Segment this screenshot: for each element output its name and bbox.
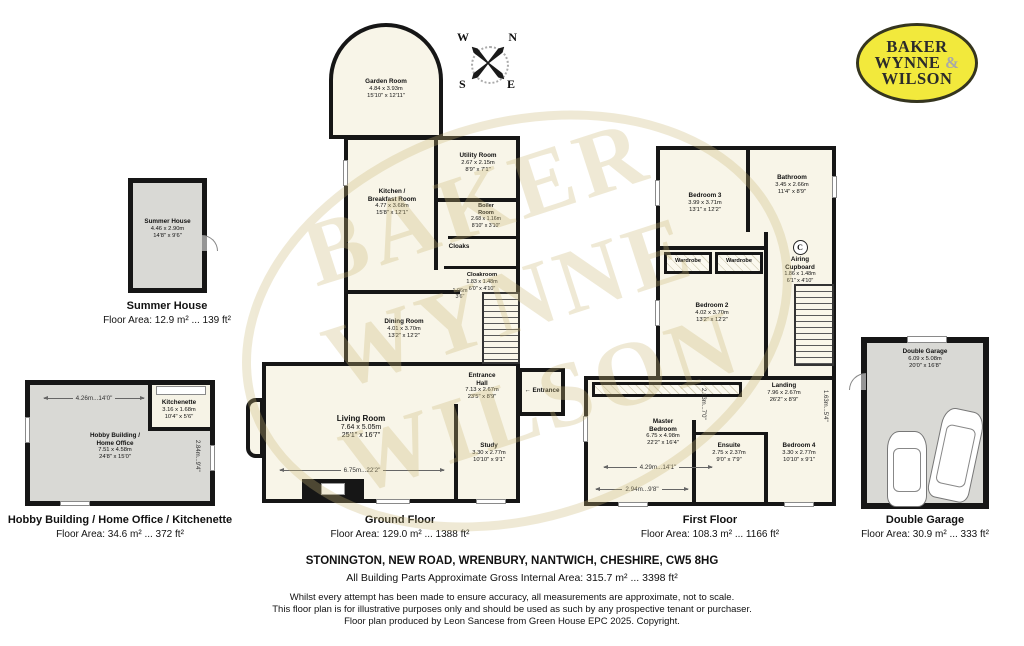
bedroom3-label: Bedroom 3 3.99 x 3.71m 13'1" x 12'2" xyxy=(660,192,750,214)
landing-vertical-dim: 1.63m...5'4" xyxy=(822,390,828,422)
bedroom2-label: Bedroom 2 4.02 x 3.70m 13'2" x 12'2" xyxy=(660,302,764,324)
ensuite-label: Ensuite 2.75 x 2.37m 9'0" x 7'9" xyxy=(694,442,764,464)
hobby-label: Hobby Building / Home Office 7.51 x 4.58… xyxy=(50,432,180,462)
hobby-caption: Hobby Building / Home Office / Kitchenet… xyxy=(0,514,240,541)
summer-house-caption: Summer House Floor Area: 12.9 m² ... 139… xyxy=(67,300,267,327)
floor-plan-canvas: Summer House 4.46 x 2.90m 14'8" x 9'6" S… xyxy=(0,0,1024,646)
kitchen-window xyxy=(343,160,348,186)
airing-c-badge: C xyxy=(793,240,808,255)
dining-label: Dining Room 4.01 x 3.70m 13'2" x 12'2" xyxy=(348,318,460,340)
kitchen-label: Kitchen / Breakfast Room 4.77 x 3.68m 15… xyxy=(348,188,436,218)
car-2 xyxy=(926,406,986,505)
master-window xyxy=(583,416,588,442)
compass-south: S xyxy=(459,77,466,92)
bed3-bottom-wall xyxy=(660,246,768,250)
hobby-width-dim: 4.26m...14'0" xyxy=(44,395,144,402)
study-label: Study 3.30 x 2.77m 10'10" x 9'1" xyxy=(456,442,522,464)
bedroom4-window-bottom xyxy=(784,502,814,507)
compass-north: N xyxy=(508,30,517,45)
hobby-window-right xyxy=(210,445,215,471)
summer-house-label: Summer House 4.46 x 2.90m 14'8" x 9'6" xyxy=(128,218,207,240)
living-window-bottom xyxy=(376,499,410,504)
baker-wynne-wilson-logo: BAKER WYNNE & WILSON xyxy=(856,23,978,103)
hobby-window-left xyxy=(25,417,30,443)
compass-rose-icon: W N S E xyxy=(455,30,521,96)
address-line: STONINGTON, NEW ROAD, WRENBURY, NANTWICH… xyxy=(0,555,1024,567)
ground-floor-caption: Ground Floor Floor Area: 129.0 m² ... 13… xyxy=(280,514,520,541)
ensuite-vertical-dim: 2.13m...7'0" xyxy=(700,388,706,420)
garage-caption: Double Garage Floor Area: 30.9 m² ... 33… xyxy=(815,514,1024,541)
wardrobe1-label: Wardrobe xyxy=(664,258,712,265)
first-stairs xyxy=(794,284,834,366)
study-window-bottom xyxy=(476,499,506,504)
bedroom4-label: Bedroom 4 3.30 x 2.77m 10'10" x 9'1" xyxy=(766,442,832,464)
disclaimer-line-1: Whilst every attempt has been made to en… xyxy=(0,592,1024,603)
compass-east: E xyxy=(507,77,515,92)
boiler-wall xyxy=(448,236,516,239)
ground-stairs xyxy=(482,292,520,364)
fireplace xyxy=(302,479,364,499)
gross-area-line: All Building Parts Approximate Gross Int… xyxy=(0,572,1024,584)
living-bay-window xyxy=(246,398,264,458)
entrance-label: ← Entrance xyxy=(514,387,570,395)
garden-room-label: Garden Room 4.84 x 3.93m 15'10" x 12'11" xyxy=(329,78,443,100)
landing-label: Landing 7.96 x 2.67m 26'2" x 8'9" xyxy=(738,382,830,404)
boiler-label: Boiler Room 2.68 x 1.16m 8'10" x 3'10" xyxy=(456,203,516,229)
entrance-hall-label: Entrance Hall 7.13 x 2.67m 23'5" x 8'9" xyxy=(444,372,520,402)
master-dim1: 4.29m...14'1" xyxy=(604,464,712,471)
cloakroom-wall xyxy=(444,266,516,269)
master-dim2: 2.94m...9'8" xyxy=(596,486,688,493)
garage-label: Double Garage 6.09 x 5.08m 20'0" x 16'8" xyxy=(861,348,989,370)
master-window-bottom xyxy=(618,502,648,507)
hobby-height-dim: 2.84m...9'4" xyxy=(194,440,200,472)
utility-label: Utility Room 2.67 x 2.15m 8'9" x 7'1" xyxy=(436,152,520,174)
bathroom-label: Bathroom 3.45 x 2.66m 11'4" x 8'9" xyxy=(748,174,836,196)
first-upper-block: Bedroom 3 3.99 x 3.71m 13'1" x 12'2" Bat… xyxy=(656,146,836,380)
airing-cupboard-label: C Airing Cupboard 1.86 x 1.48m 6'1" x 4'… xyxy=(768,240,832,285)
car-1 xyxy=(887,431,927,507)
hall-width-dim: 1.06m 3'6" xyxy=(440,288,480,300)
wardrobe2-label: Wardrobe xyxy=(715,258,763,265)
entrance-arrow-icon: ← xyxy=(525,387,531,394)
disclaimer-line-2: This floor plan is for illustrative purp… xyxy=(0,604,1024,615)
kitchenette-label: Kitchenette 3.16 x 1.68m 10'4" x 5'6" xyxy=(148,399,210,421)
hobby-window-bottom xyxy=(60,501,90,506)
master-wardrobe-strip xyxy=(592,382,742,397)
living-room-label: Living Room 7.64 x 5.05m 25'1" x 16'7" xyxy=(266,414,456,441)
cloaks-label: Cloaks xyxy=(436,243,482,251)
compass-west: W xyxy=(457,30,469,45)
kitchenette-worktop xyxy=(156,386,206,395)
first-lower-block: Landing 7.96 x 2.67m 26'2" x 8'9" Master… xyxy=(584,376,836,506)
first-floor-caption: First Floor Floor Area: 108.3 m² ... 116… xyxy=(590,514,830,541)
disclaimer-line-3: Floor plan produced by Leon Sancese from… xyxy=(0,616,1024,627)
garage-side-door xyxy=(849,373,866,390)
living-width-dim: 6.75m...22'2" xyxy=(280,467,444,474)
garage-window-top xyxy=(907,336,947,343)
utility-bottom-wall xyxy=(434,198,516,202)
